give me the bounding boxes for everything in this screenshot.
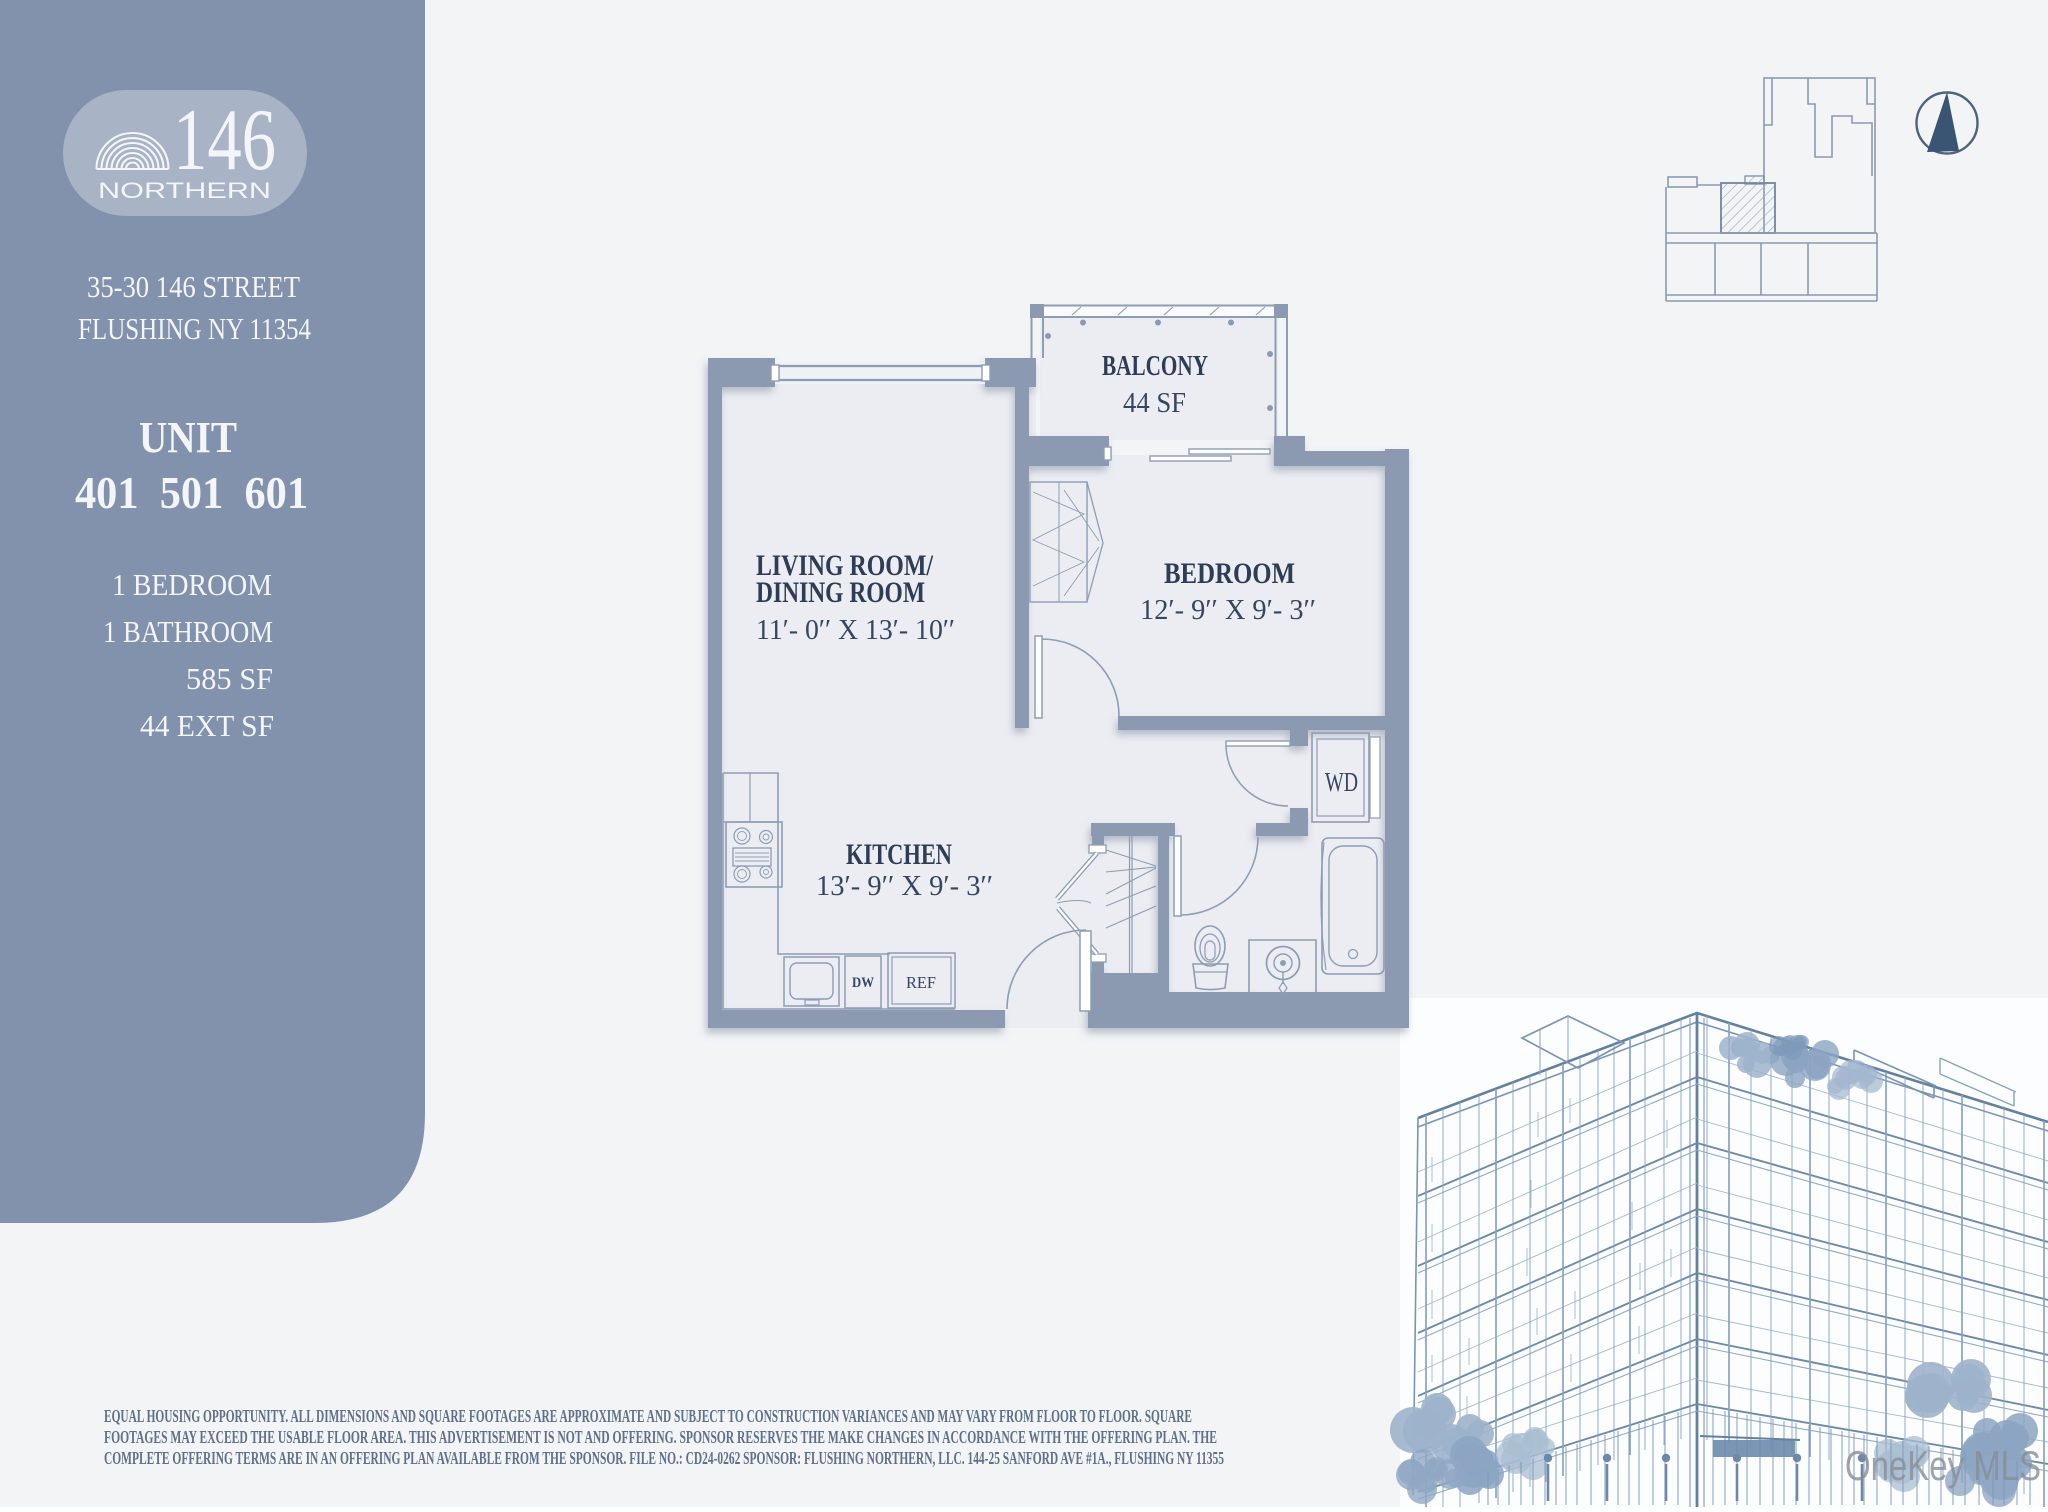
svg-text:1 BATHROOM: 1 BATHROOM xyxy=(103,614,273,649)
svg-text:146: 146 xyxy=(173,92,276,189)
svg-text:12′- 9′′ X 9′- 3′′: 12′- 9′′ X 9′- 3′′ xyxy=(1140,594,1316,626)
svg-text:44 EXT SF: 44 EXT SF xyxy=(140,708,274,743)
svg-text:11′- 0′′ X 13′- 10′′: 11′- 0′′ X 13′- 10′′ xyxy=(756,614,955,646)
svg-text:OneKey MLS: OneKey MLS xyxy=(1845,1442,2041,1489)
svg-text:585 SF: 585 SF xyxy=(186,661,273,696)
svg-text:44 SF: 44 SF xyxy=(1123,388,1186,419)
svg-text:REF: REF xyxy=(906,973,936,992)
svg-text:13′- 9′′ X 9′- 3′′: 13′- 9′′ X 9′- 3′′ xyxy=(816,870,993,902)
svg-text:COMPLETE OFFERING TERMS ARE IN: COMPLETE OFFERING TERMS ARE IN AN OFFERI… xyxy=(104,1448,1224,1468)
svg-text:FOOTAGES MAY EXCEED THE USABLE: FOOTAGES MAY EXCEED THE USABLE FLOOR ARE… xyxy=(104,1427,1217,1447)
svg-text:UNIT: UNIT xyxy=(139,413,237,462)
svg-text:NORTHERN: NORTHERN xyxy=(98,178,271,203)
svg-text:BALCONY: BALCONY xyxy=(1102,351,1208,382)
svg-text:1 BEDROOM: 1 BEDROOM xyxy=(112,567,272,602)
svg-text:EQUAL HOUSING OPPORTUNITY. ALL: EQUAL HOUSING OPPORTUNITY. ALL DIMENSION… xyxy=(104,1406,1192,1426)
svg-text:DW: DW xyxy=(852,975,874,991)
svg-text:35-30 146 STREET: 35-30 146 STREET xyxy=(87,269,300,304)
svg-text:BEDROOM: BEDROOM xyxy=(1164,557,1295,590)
svg-text:FLUSHING NY 11354: FLUSHING NY 11354 xyxy=(78,311,311,346)
svg-text:401 501 601: 401 501 601 xyxy=(75,467,308,518)
svg-text:KITCHEN: KITCHEN xyxy=(846,838,952,871)
svg-text:DINING ROOM: DINING ROOM xyxy=(756,576,925,609)
svg-text:WD: WD xyxy=(1325,767,1358,797)
